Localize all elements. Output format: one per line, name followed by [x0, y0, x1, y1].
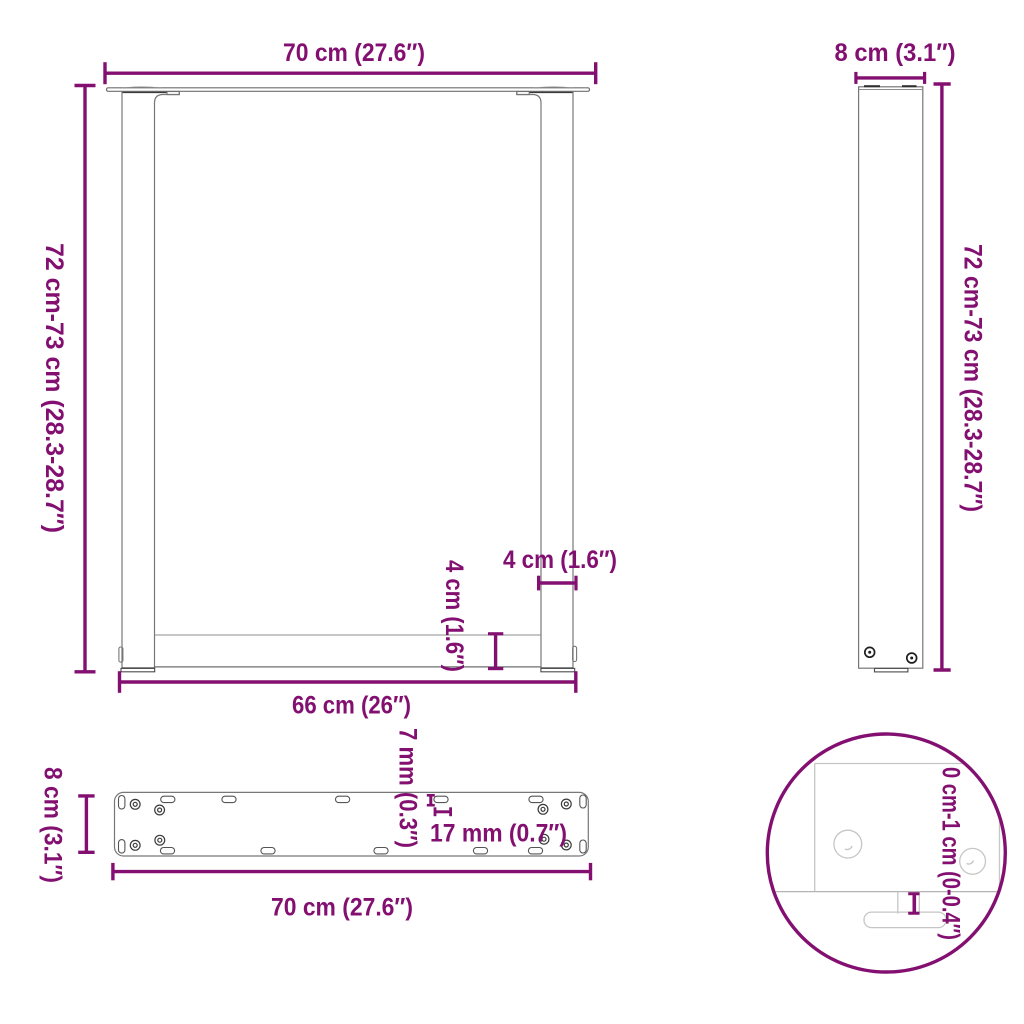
svg-text:72 cm-73 cm (28.3-28.7″): 72 cm-73 cm (28.3-28.7″): [959, 244, 987, 512]
svg-text:0 cm-1 cm (0-0.4″): 0 cm-1 cm (0-0.4″): [937, 767, 965, 940]
svg-text:17 mm (0.7″): 17 mm (0.7″): [430, 819, 567, 847]
svg-text:4 cm (1.6″): 4 cm (1.6″): [503, 546, 617, 574]
svg-text:8 cm (3.1″): 8 cm (3.1″): [835, 39, 956, 67]
svg-text:7 mm (0.3″): 7 mm (0.3″): [394, 728, 422, 848]
svg-text:66 cm (26″): 66 cm (26″): [292, 691, 411, 719]
svg-text:72 cm-73 cm (28.3-28.7″): 72 cm-73 cm (28.3-28.7″): [40, 243, 68, 533]
svg-text:4 cm (1.6″): 4 cm (1.6″): [440, 560, 468, 672]
svg-text:70 cm (27.6″): 70 cm (27.6″): [271, 893, 413, 921]
svg-text:70 cm (27.6″): 70 cm (27.6″): [283, 39, 425, 67]
svg-text:8 cm (3.1″): 8 cm (3.1″): [39, 767, 67, 883]
